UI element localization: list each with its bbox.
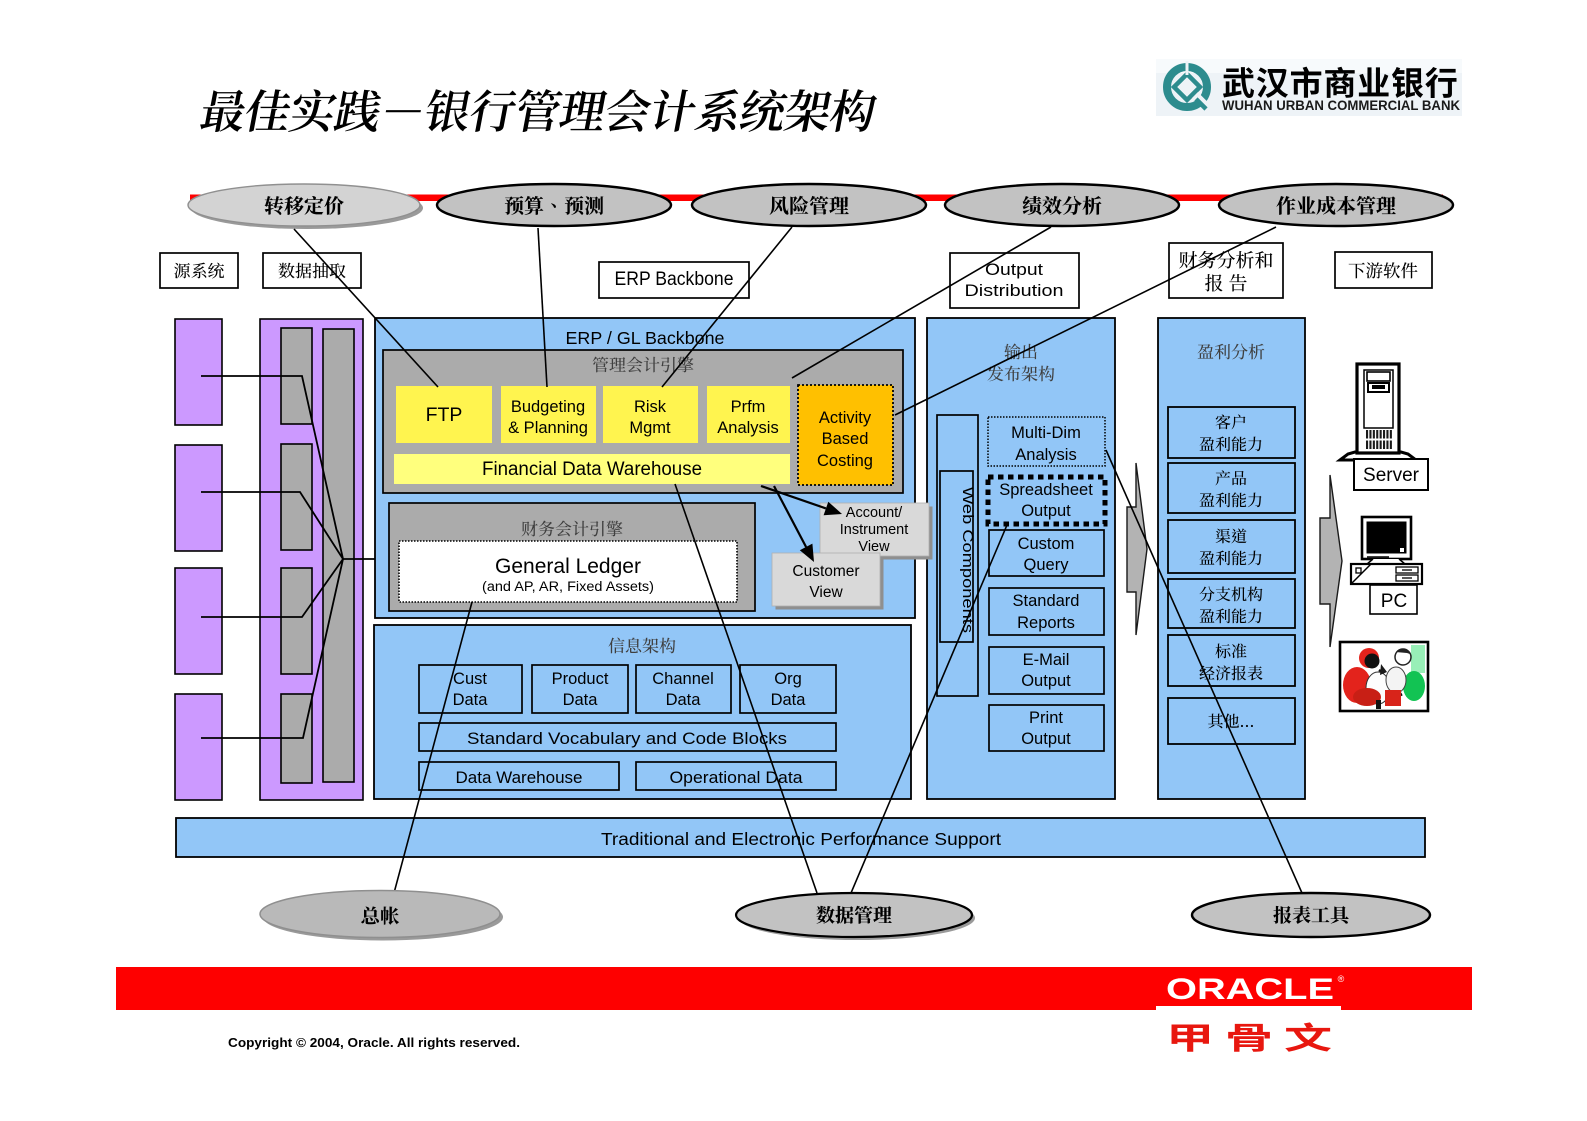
svg-text:Web Components: Web Components [959, 487, 976, 633]
svg-text:Activity: Activity [819, 409, 872, 427]
svg-text:Spreadsheet: Spreadsheet [999, 481, 1093, 499]
svg-text:WUHAN URBAN COMMERCIAL BANK: WUHAN URBAN COMMERCIAL BANK [1222, 98, 1460, 113]
svg-text:Risk: Risk [634, 398, 667, 416]
svg-text:Instrument: Instrument [840, 522, 909, 538]
svg-text:Copyright © 2004, Oracle. All: Copyright © 2004, Oracle. All rights res… [228, 1035, 520, 1050]
svg-text:Mgmt: Mgmt [629, 419, 671, 437]
svg-text:Data: Data [771, 691, 807, 709]
svg-text:Prfm: Prfm [731, 398, 766, 416]
svg-text:Data: Data [453, 691, 489, 709]
svg-text:Data Warehouse: Data Warehouse [456, 768, 583, 787]
svg-text:Distribution: Distribution [965, 281, 1064, 300]
svg-text:Product: Product [552, 670, 609, 688]
svg-text:Custom: Custom [1018, 535, 1075, 553]
svg-text:View: View [858, 539, 890, 555]
svg-text:Account/: Account/ [846, 505, 903, 521]
svg-text:Budgeting: Budgeting [511, 398, 585, 416]
svg-text:Output: Output [1021, 730, 1071, 748]
svg-text:Output: Output [985, 260, 1043, 279]
svg-text:(and AP, AR, Fixed Assets): (and AP, AR, Fixed Assets) [482, 579, 654, 594]
svg-text:Query: Query [1024, 556, 1070, 574]
svg-text:FTP: FTP [426, 404, 463, 426]
svg-text:Print: Print [1029, 709, 1063, 727]
svg-text:Data: Data [563, 691, 599, 709]
svg-text:Financial Data Warehouse: Financial Data Warehouse [482, 459, 702, 480]
svg-text:View: View [809, 584, 843, 601]
svg-text:Operational Data: Operational Data [670, 768, 804, 787]
svg-text:Cust: Cust [453, 670, 487, 688]
svg-text:PC: PC [1381, 591, 1407, 612]
svg-text:Reports: Reports [1017, 614, 1075, 632]
svg-text:ERP / GL Backbone: ERP / GL Backbone [566, 328, 725, 348]
svg-text:Org: Org [774, 670, 802, 688]
svg-text:Data: Data [666, 691, 702, 709]
svg-text:Costing: Costing [817, 452, 873, 470]
svg-text:General Ledger: General Ledger [495, 555, 641, 578]
svg-text:Output: Output [1021, 502, 1071, 520]
svg-text:Standard: Standard [1013, 592, 1080, 610]
svg-text:ORACLE: ORACLE [1166, 973, 1334, 1006]
svg-text:ERP Backbone: ERP Backbone [615, 269, 734, 290]
svg-text:Standard Vocabulary and Code B: Standard Vocabulary and Code Blocks [467, 729, 787, 748]
svg-text:Analysis: Analysis [717, 419, 778, 437]
svg-text:Customer: Customer [792, 563, 859, 580]
svg-text:Server: Server [1363, 465, 1420, 486]
svg-text:Based: Based [822, 430, 869, 448]
svg-text:E-Mail: E-Mail [1023, 651, 1070, 669]
svg-text:Channel: Channel [652, 670, 713, 688]
svg-text:Output: Output [1021, 672, 1071, 690]
svg-text:®: ® [1338, 974, 1345, 984]
svg-text:Analysis: Analysis [1015, 446, 1076, 464]
svg-text:Multi-Dim: Multi-Dim [1011, 424, 1081, 442]
svg-text:& Planning: & Planning [508, 419, 588, 437]
